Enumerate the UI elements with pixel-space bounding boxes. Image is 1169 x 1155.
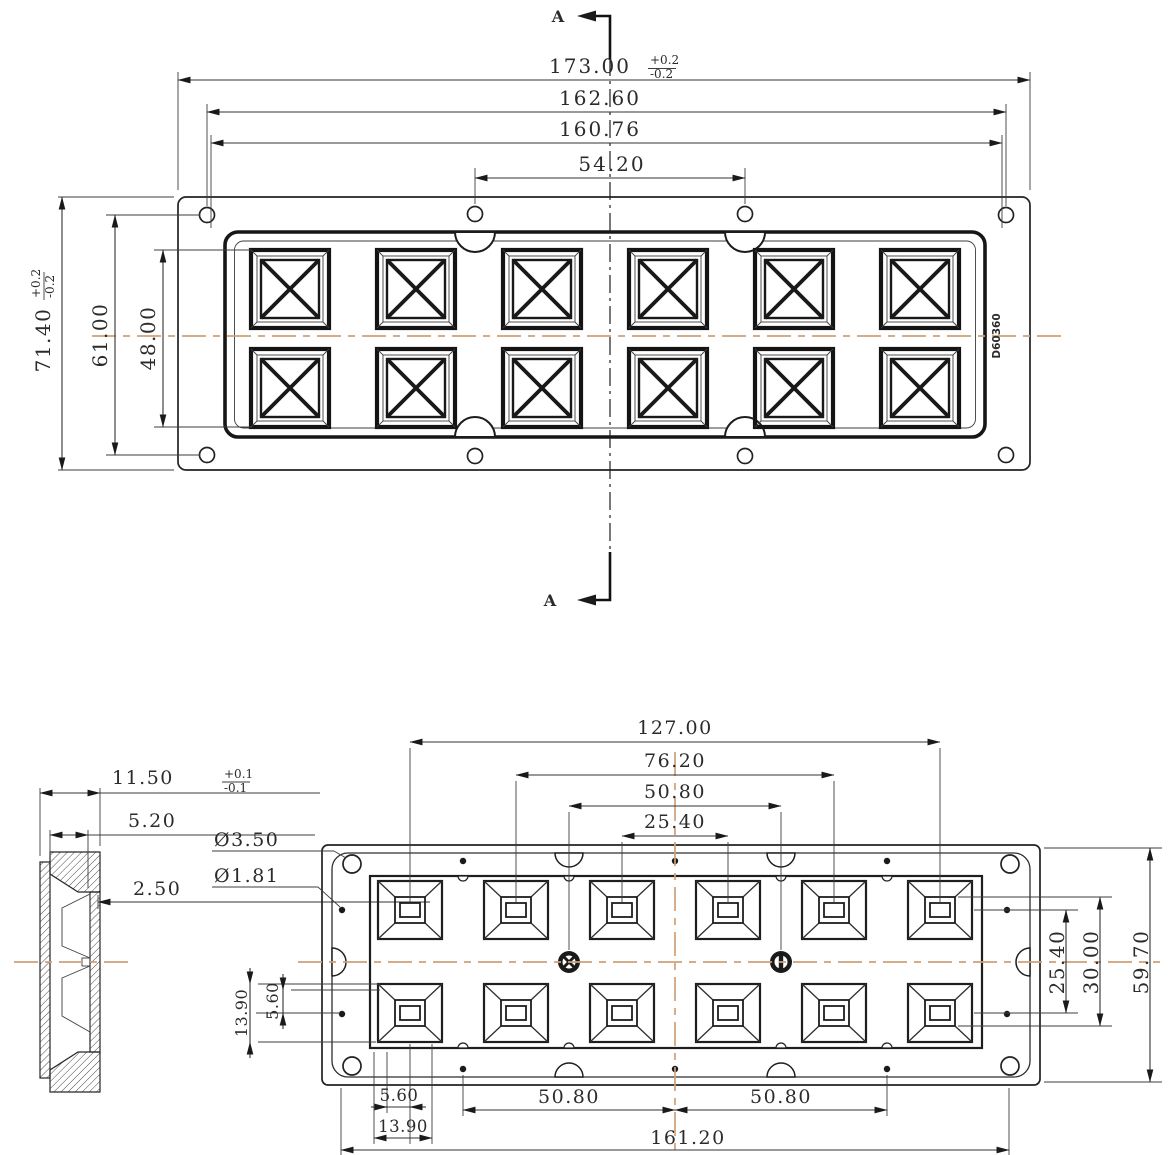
dim-height-holes-group: 61.00 (88, 303, 112, 368)
frame-scallop (455, 232, 495, 252)
dim-span-4: 76.20 (644, 750, 706, 772)
dim-left-inner-group: 5.60 (263, 982, 282, 1020)
dim-height-overall: 71.40 (31, 308, 55, 373)
section-label-bottom: A (543, 591, 557, 610)
mounting-hole (200, 208, 215, 223)
contour-scallop (555, 1063, 583, 1077)
lens-pocket-facet (849, 1026, 866, 1042)
lens-pocket-facet (378, 1026, 395, 1042)
edge-notch (776, 1043, 786, 1048)
dim-height-lens: 48.00 (136, 306, 160, 371)
lens-pocket-facet (802, 1026, 819, 1042)
dim-pitch: 25.40 (644, 811, 706, 833)
lens-pocket-facet (743, 881, 760, 897)
bottom-block-section (50, 1052, 100, 1092)
mounting-hole (200, 448, 215, 463)
lens-pocket-facet (484, 984, 501, 1000)
dim-bottom-overall: 161.20 (650, 1127, 725, 1149)
lens-pocket-facet (637, 1026, 654, 1042)
dim-left-inner: 5.60 (263, 982, 282, 1020)
lens-pocket-facet (484, 881, 501, 897)
section-arrow-bottom (577, 595, 596, 606)
section-arrow-top (577, 11, 596, 22)
part-label: D60360 (991, 313, 1003, 358)
dim-span-6: 127.00 (637, 717, 712, 739)
lens-pocket-die (612, 1006, 632, 1020)
lens-pocket-facet (696, 984, 713, 1000)
lens-pocket-facet (696, 1026, 713, 1042)
lens-pocket-die (930, 903, 950, 917)
mounting-hole (1001, 855, 1019, 873)
lens-profile (62, 966, 90, 1032)
lens-pocket-facet (531, 984, 548, 1000)
lens-pocket-facet (378, 984, 395, 1000)
dim-bottom-right-span: 50.80 (750, 1086, 812, 1108)
pin-dot (339, 907, 345, 913)
dim-width-tol-minus: -0.2 (650, 67, 673, 81)
lens-pocket-facet (696, 881, 713, 897)
lens-pocket-die (400, 1006, 420, 1020)
lens-pocket-facet (908, 881, 925, 897)
mounting-hole (999, 448, 1014, 463)
lens-pocket-facet (908, 923, 925, 939)
lens-profile-step (82, 958, 90, 966)
edge-notch (882, 1043, 892, 1048)
lens-pocket-facet (637, 881, 654, 897)
dim-row-pitch: 25.40 (1045, 930, 1069, 995)
edge-notch (882, 876, 892, 881)
lens-pocket-die (718, 1006, 738, 1020)
lens-pocket-facet (955, 881, 972, 897)
top-block-section (50, 852, 100, 892)
lens-pocket-facet (425, 984, 442, 1000)
dim-depth: 11.50 (112, 767, 174, 789)
pin-dot (1004, 1011, 1010, 1017)
lens-profile (62, 894, 90, 958)
extension-line (334, 851, 346, 858)
lens-pocket-facet (802, 984, 819, 1000)
lens-pocket-facet (531, 881, 548, 897)
dim-hole-dia: Ø3.50 (214, 829, 279, 851)
lens-pocket-facet (425, 881, 442, 897)
pin-dot (460, 858, 466, 864)
lens-pocket-facet (908, 984, 925, 1000)
mounting-hole (343, 1057, 361, 1075)
lens-pocket-facet (743, 984, 760, 1000)
lens-pocket-facet (484, 923, 501, 939)
dim-height-span: 59.70 (1129, 930, 1153, 995)
lens-pocket-facet (590, 984, 607, 1000)
dim-width-frame: 160.76 (559, 117, 641, 141)
lens-pocket-die (824, 903, 844, 917)
dim-depth-tol-plus: +0.1 (224, 767, 253, 781)
dim-pin-span: 50.80 (644, 781, 706, 803)
lens-pocket-facet (849, 923, 866, 939)
lens-pocket-facet (955, 923, 972, 939)
flange-section (40, 862, 50, 1078)
lens-pocket-facet (696, 923, 713, 939)
lens-pocket-facet (955, 1026, 972, 1042)
lens-pocket-facet (378, 923, 395, 939)
contour-scallop (767, 1063, 795, 1077)
dim-left-outer: 13.90 (232, 989, 251, 1037)
dim-left-outer-group: 13.90 (232, 989, 251, 1037)
mounting-hole (468, 449, 483, 464)
dim-width-holes: 162.60 (559, 86, 641, 110)
dim-row-span: 30.00 (1079, 930, 1103, 995)
pin-dot (884, 1066, 890, 1072)
dim-row-pitch-group: 25.40 (1045, 930, 1069, 995)
bottom-view: 127.00 76.20 50.80 25.40 Ø3.50 Ø1.81 25.… (212, 717, 1162, 1155)
frame-scallop (455, 417, 495, 437)
dim-bottom-outer: 13.90 (378, 1117, 428, 1136)
dim-height-span-group: 59.70 (1129, 930, 1153, 995)
dim-bottom-inner: 5.60 (380, 1086, 419, 1105)
pin-dot (460, 1066, 466, 1072)
lens-frame-inner (235, 241, 976, 428)
dim-width-tol-plus: +0.2 (650, 53, 679, 67)
top-view-dimensions (58, 72, 1030, 470)
lens-pocket-die (612, 903, 632, 917)
lens-pocket-die (506, 903, 526, 917)
mounting-hole (1001, 1057, 1019, 1075)
lens-pocket-facet (849, 881, 866, 897)
edge-notch (458, 1043, 468, 1048)
lens-pocket-die (718, 903, 738, 917)
dim-height-tol-minus: -0.2 (43, 275, 57, 298)
dim-height-tol-plus: +0.2 (29, 269, 43, 298)
top-view: 173.00 +0.2 -0.2 162.60 160.76 54.20 71.… (29, 7, 1064, 610)
pin-dot (339, 1011, 345, 1017)
section-marker-bottom (584, 552, 610, 600)
dim-pin-dia: Ø1.81 (214, 865, 279, 887)
lens-pocket-facet (637, 923, 654, 939)
section-label-top: A (551, 7, 565, 26)
side-view: 11.50 +0.1 -0.1 5.20 2.50 (14, 767, 430, 1092)
bottom-view-geometry (298, 752, 1160, 1152)
dim-height-lens-group: 48.00 (136, 306, 160, 371)
lens-pocket-facet (743, 1026, 760, 1042)
pin-dot (884, 858, 890, 864)
lens-pocket-facet (802, 923, 819, 939)
mounting-hole (468, 207, 483, 222)
dim-bottom-left-span: 50.80 (538, 1086, 600, 1108)
lens-frame (225, 232, 985, 437)
lens-pocket-facet (531, 923, 548, 939)
wall-section (90, 892, 100, 1052)
lens-pocket-facet (378, 881, 395, 897)
lens-pocket-facet (590, 881, 607, 897)
lens-pocket-die (506, 1006, 526, 1020)
lens-pocket-facet (531, 1026, 548, 1042)
side-view-geometry (14, 852, 130, 1092)
dim-height-overall-group: 71.40 +0.2 -0.2 (29, 269, 57, 373)
dim-wall: 2.50 (133, 878, 181, 900)
dim-depth-tol-minus: -0.1 (224, 781, 247, 795)
drawing-canvas: 173.00 +0.2 -0.2 162.60 160.76 54.20 71.… (0, 0, 1169, 1155)
lens-pocket-facet (590, 1026, 607, 1042)
lens-pocket-facet (955, 984, 972, 1000)
dim-step: 5.20 (128, 810, 176, 832)
lens-pocket-facet (425, 1026, 442, 1042)
dim-height-holes: 61.00 (88, 303, 112, 368)
mounting-hole (738, 207, 753, 222)
lens-pocket-facet (425, 923, 442, 939)
lens-pocket-facet (849, 984, 866, 1000)
lens-pocket-die (824, 1006, 844, 1020)
lens-pocket-facet (637, 984, 654, 1000)
lens-pocket-facet (908, 1026, 925, 1042)
lens-pocket-facet (590, 923, 607, 939)
lens-pocket-facet (802, 881, 819, 897)
technical-drawing: 173.00 +0.2 -0.2 162.60 160.76 54.20 71.… (0, 0, 1169, 1155)
part-label-group: D60360 (991, 313, 1003, 358)
edge-notch (564, 1043, 574, 1048)
edge-notch (458, 876, 468, 881)
lens-pocket-facet (484, 1026, 501, 1042)
lens-pocket-die (400, 903, 420, 917)
dim-hole-pitch: 54.20 (578, 152, 645, 176)
lens-pocket-die (930, 1006, 950, 1020)
bottom-view-dimensions (212, 742, 1162, 1155)
dim-row-span-group: 30.00 (1079, 930, 1103, 995)
mounting-hole (999, 208, 1014, 223)
mounting-hole (738, 449, 753, 464)
lens-pocket-facet (743, 923, 760, 939)
dim-width-overall: 173.00 (549, 54, 631, 78)
